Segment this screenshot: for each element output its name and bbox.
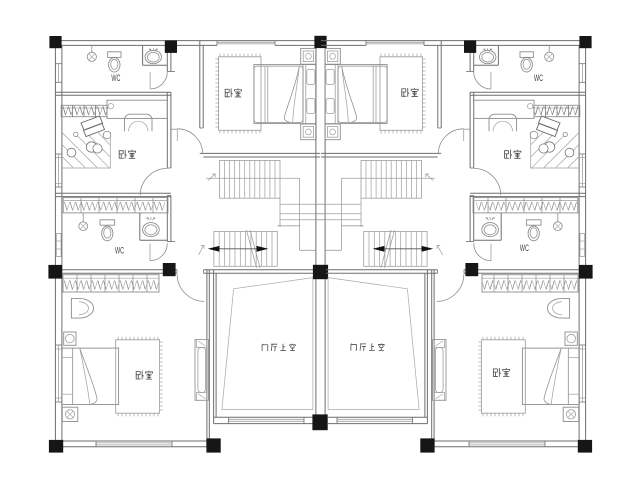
svg-text:WC: WC (115, 245, 124, 255)
svg-text:WC: WC (111, 73, 120, 83)
svg-text:WC: WC (520, 243, 529, 253)
svg-text:WC: WC (534, 73, 543, 83)
